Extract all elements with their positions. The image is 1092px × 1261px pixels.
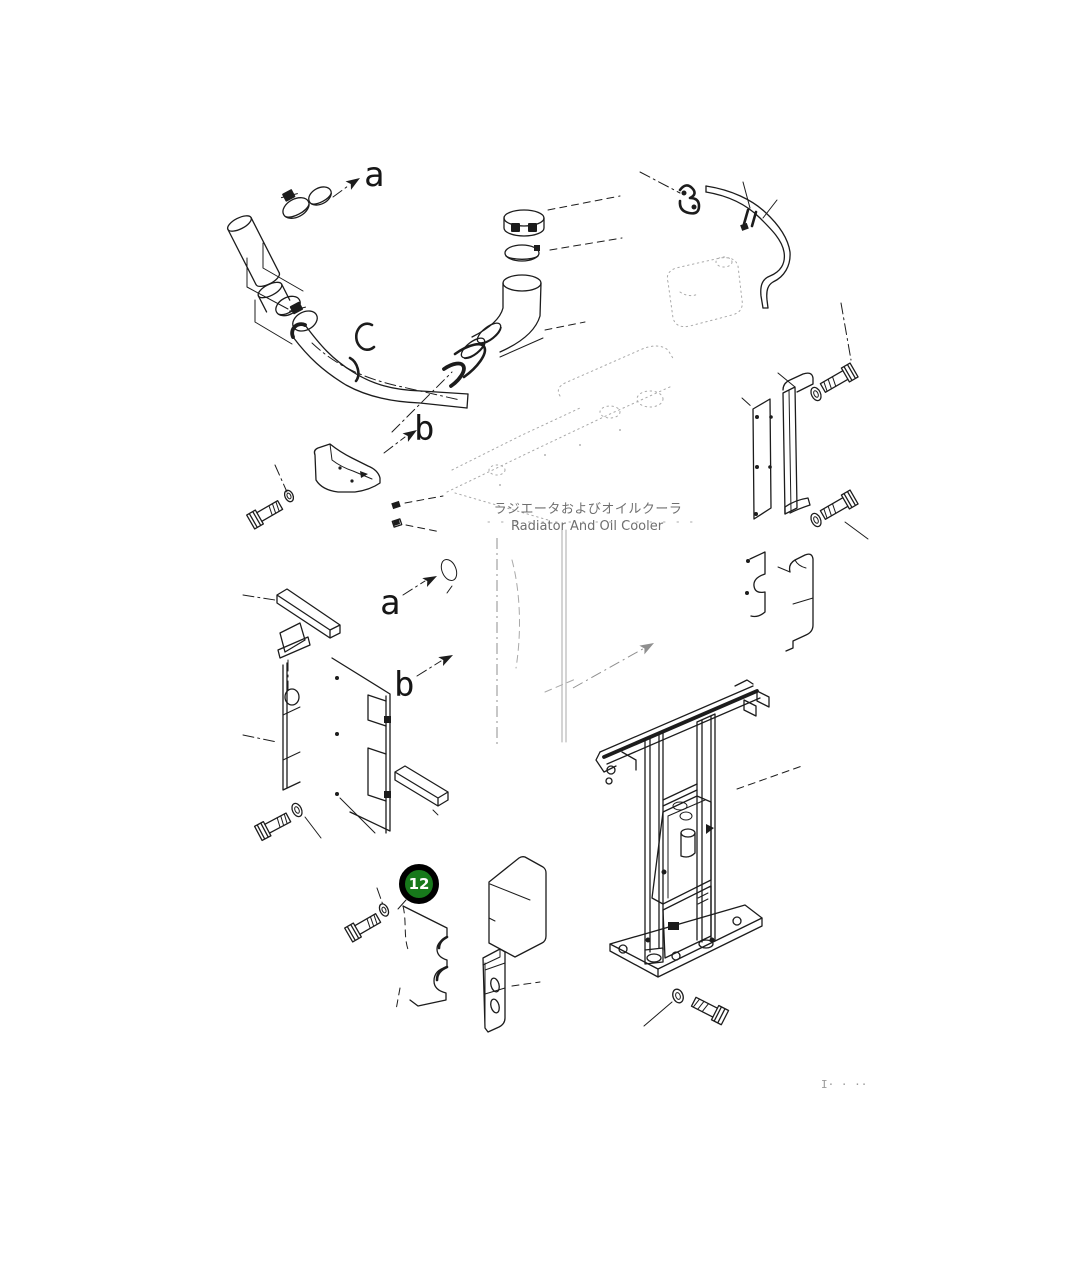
title-japanese: ラジエータおよびオイルクーラ bbox=[494, 502, 683, 517]
radiator-outline-faint bbox=[488, 522, 700, 748]
bottom-center-bracket-group bbox=[345, 857, 546, 1032]
right-side-brackets bbox=[745, 552, 813, 651]
direction-label-b-upper: b bbox=[384, 409, 434, 453]
direction-letter: a bbox=[380, 583, 400, 623]
direction-label-b-middle: b bbox=[394, 651, 455, 705]
left-panel-group bbox=[243, 589, 448, 840]
engine-outline-faint bbox=[447, 346, 674, 520]
radiator-guard-frame bbox=[596, 680, 802, 977]
title-english: Radiator And Oil Cooler bbox=[511, 519, 664, 534]
direction-label-a-top: a bbox=[333, 155, 384, 197]
callout-balloon-12[interactable]: 12 bbox=[402, 867, 436, 901]
balloon-number: 12 bbox=[409, 875, 430, 893]
parts-diagram-canvas: ラジエータおよびオイルクーラ Radiator And Oil Cooler a… bbox=[0, 0, 1092, 1261]
upper-left-hose-assembly bbox=[225, 183, 543, 408]
direction-letter: b bbox=[394, 665, 414, 705]
parts-diagram-page: ラジエータおよびオイルクーラ Radiator And Oil Cooler a… bbox=[0, 0, 1092, 1261]
footer-mark: I· · ·· bbox=[821, 1078, 867, 1091]
direction-letter: b bbox=[414, 409, 434, 449]
right-side-plates-and-bolts bbox=[742, 303, 868, 539]
frame-mounting-bolt bbox=[644, 988, 729, 1026]
overflow-hose-and-clip bbox=[640, 172, 790, 327]
direction-label-a-middle: a bbox=[380, 557, 460, 623]
direction-letter: a bbox=[364, 155, 384, 195]
radiator-cap-and-filler-pipe bbox=[392, 196, 622, 432]
left-middle-bracket-and-bolt bbox=[247, 444, 443, 532]
